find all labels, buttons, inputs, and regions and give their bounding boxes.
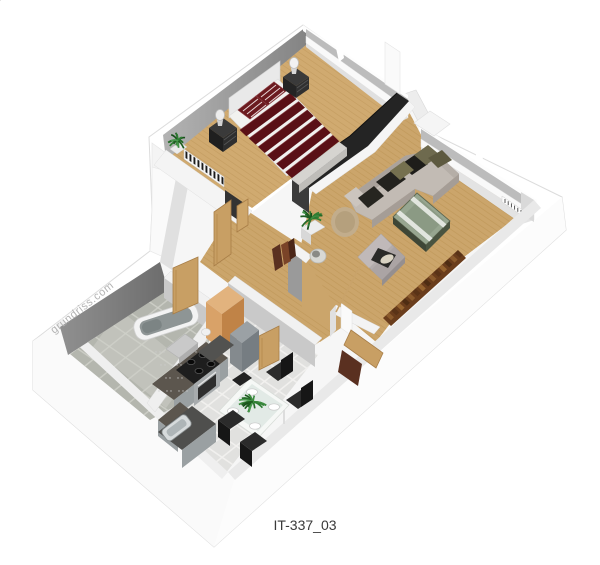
svg-text:IT-337_03: IT-337_03 (273, 517, 336, 533)
